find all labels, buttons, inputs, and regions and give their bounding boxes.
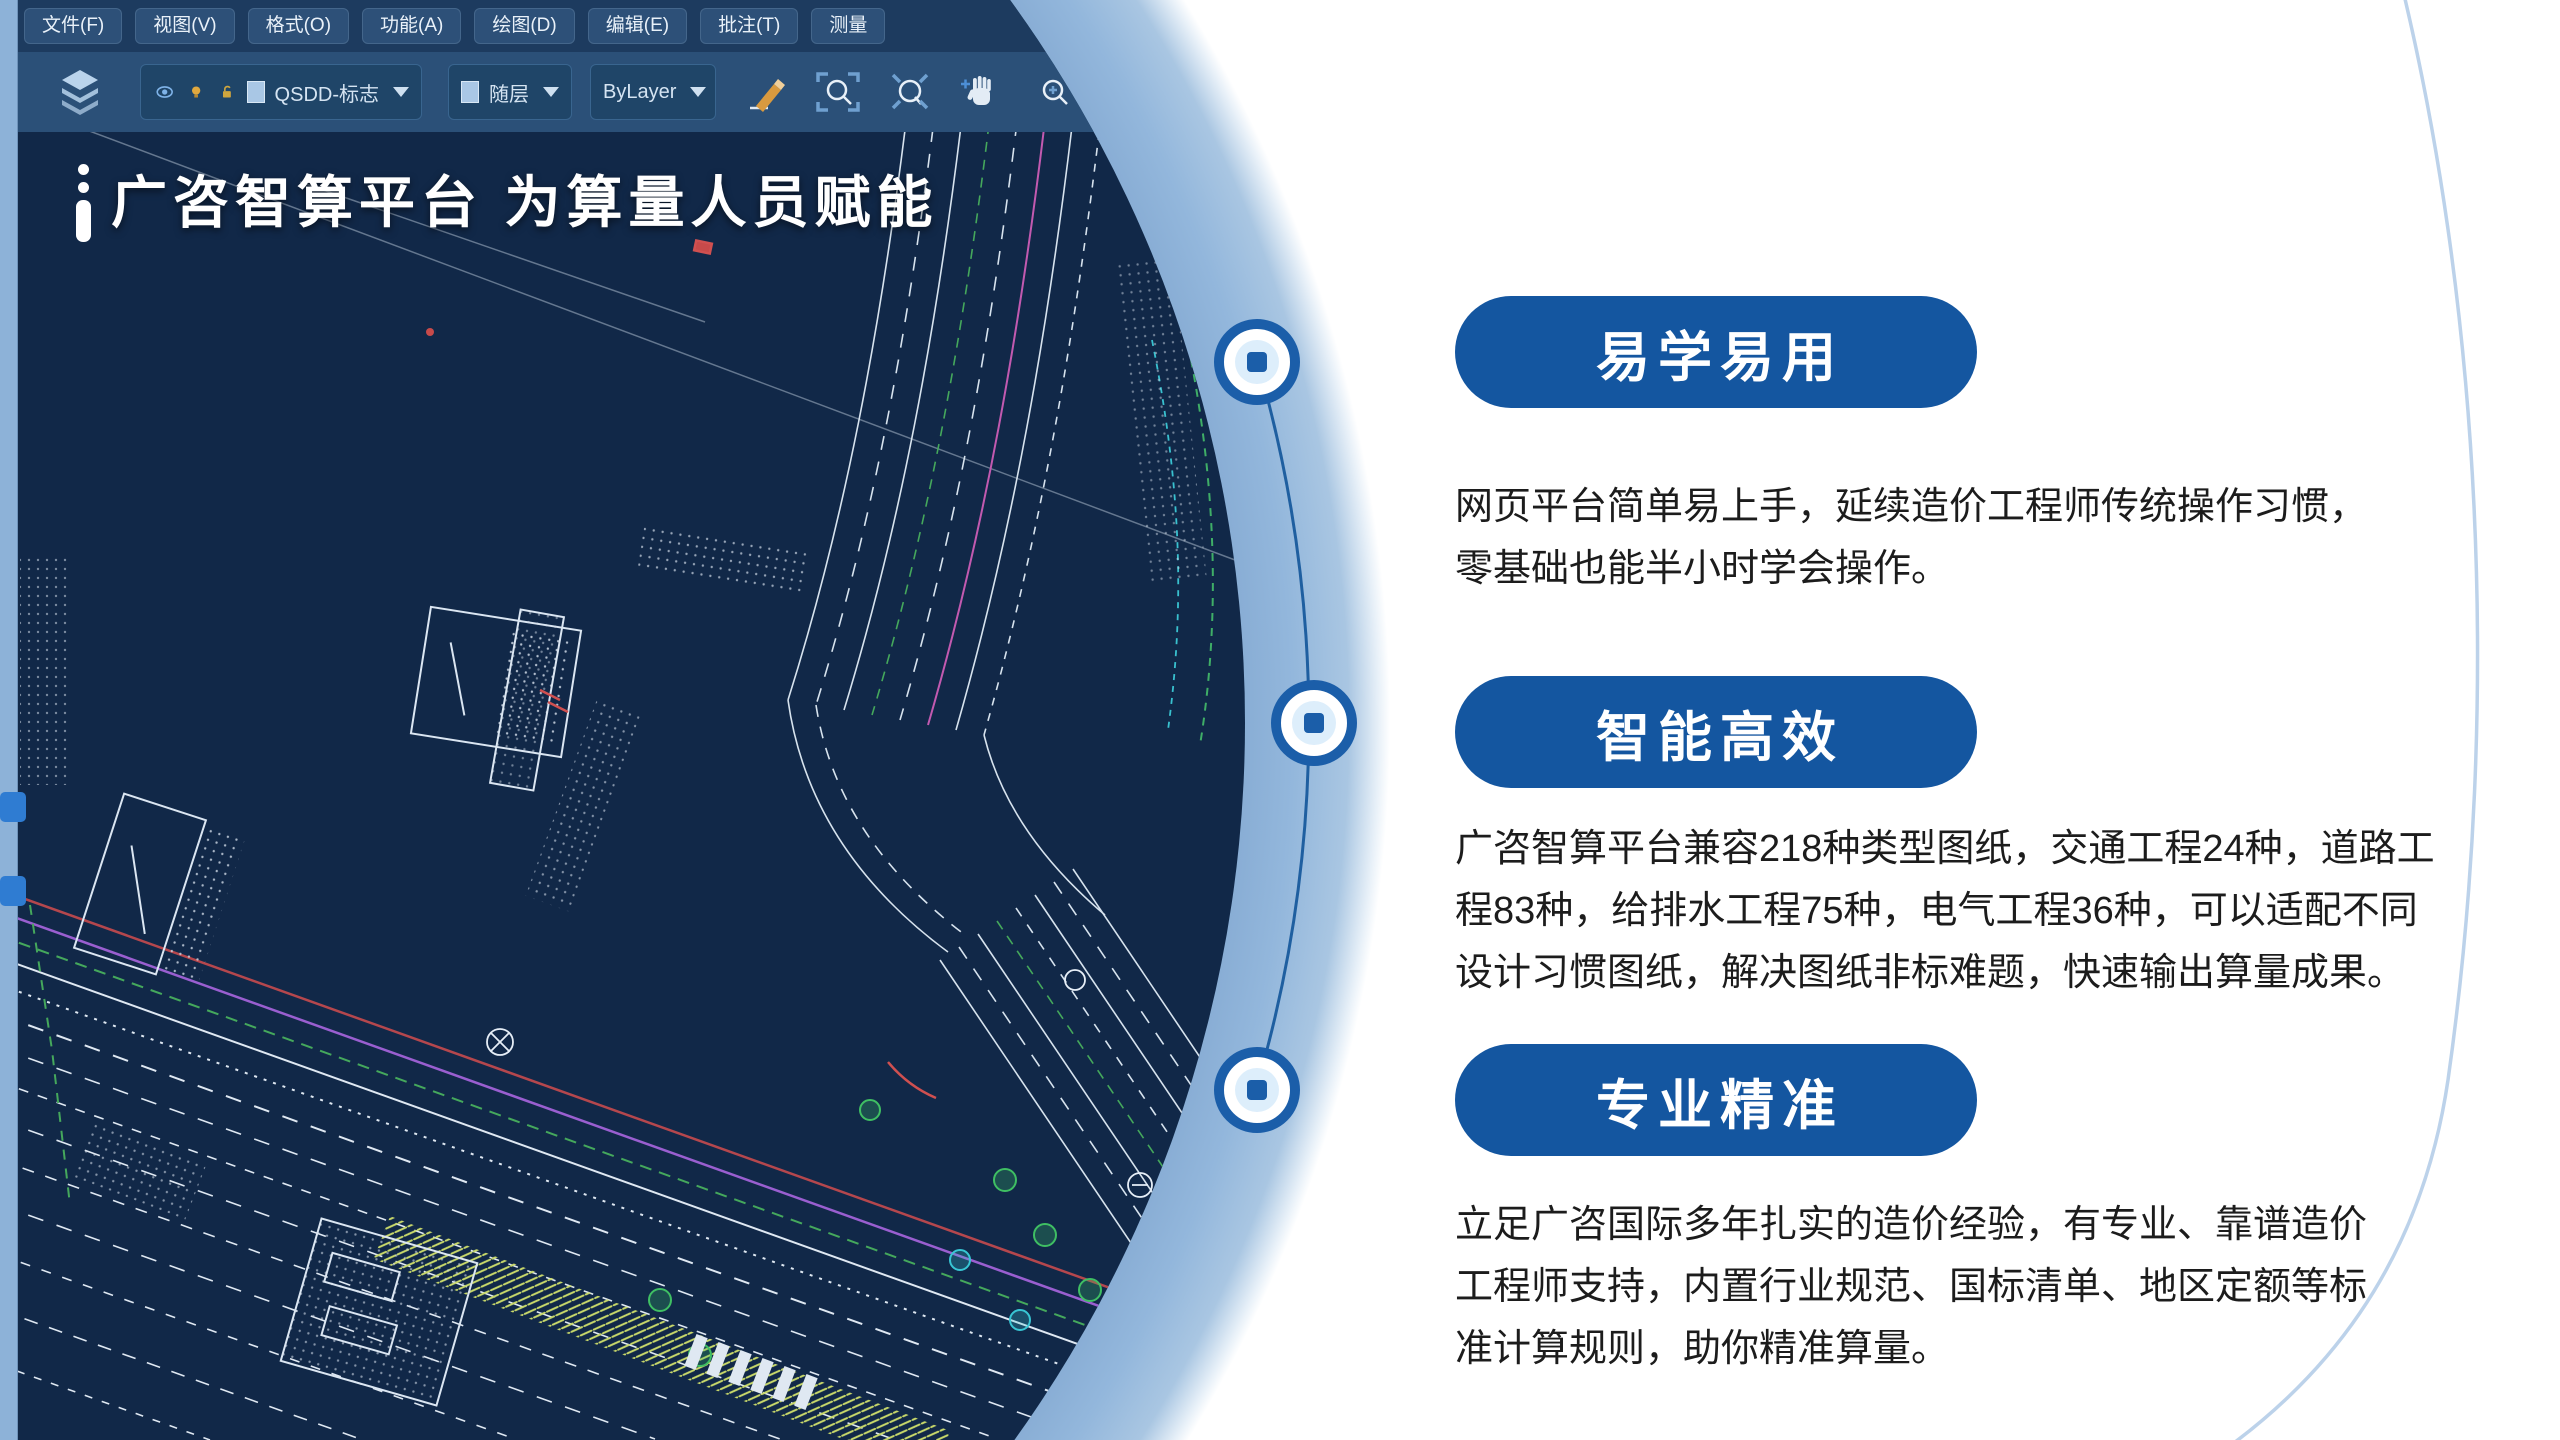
layers-panel-icon[interactable] [52,64,108,120]
chevron-down-icon [543,87,559,97]
page-title: 广咨智算平台 为算量人员赋能 [111,158,939,239]
zoom-extents-icon [888,70,932,114]
title-ornament-icon [76,158,91,242]
cad-menu-bar: 文件(F) 视图(V) 格式(O) 功能(A) 绘图(D) 编辑(E) 批注(T… [0,0,1245,52]
menu-view[interactable]: 视图(V) [135,8,234,44]
menu-measure[interactable]: 测量 [811,8,885,44]
page-title-block: 广咨智算平台 为算量人员赋能 [76,158,939,242]
cad-toolbar: QSDD-标志 随层 ByLayer [0,52,1245,132]
menu-draw[interactable]: 绘图(D) [474,8,574,44]
chevron-down-icon [690,87,706,97]
zoom-window-button[interactable] [816,64,860,120]
side-tool-button[interactable] [0,876,26,906]
color-selector[interactable]: 随层 [448,64,572,120]
menu-file[interactable]: 文件(F) [24,8,122,44]
feature-text-precise: 立足广咨国际多年扎实的造价经验，有专业、靠谱造价 工程师支持，内置行业规范、国标… [1455,1194,2455,1380]
side-strip [0,0,18,1440]
feature-text-smart: 广咨智算平台兼容218种类型图纸，交通工程24种，道路工 程83种，给排水工程7… [1455,818,2455,1004]
layer-selector-value: QSDD-标志 [275,78,379,107]
layers-icon [52,64,108,120]
timeline-bullet-3 [1214,1047,1300,1133]
layer-on-bulb-icon [186,77,206,107]
slide: 文件(F) 视图(V) 格式(O) 功能(A) 绘图(D) 编辑(E) 批注(T… [0,0,2560,1440]
feature-pill-precise: 专业精准 [1455,1044,1977,1156]
menu-function[interactable]: 功能(A) [362,8,461,44]
linetype-selector[interactable]: ByLayer [590,64,716,120]
layer-unlock-icon [217,77,237,107]
zoom-extents-button[interactable] [888,64,932,120]
pan-button[interactable] [958,64,1002,120]
timeline-bullet-2 [1271,680,1357,766]
zoom-in-icon [1032,70,1076,114]
side-tool-button[interactable] [0,792,26,822]
timeline-bullet-1 [1214,319,1300,405]
cad-bottom-right-road [940,869,1245,1440]
zoom-window-icon [816,70,860,114]
current-color-swatch [461,81,479,103]
edit-pencil-button[interactable] [744,64,788,120]
cad-left-green-dash [30,905,70,1205]
menu-annotate[interactable]: 批注(T) [700,8,798,44]
layer-selector[interactable]: QSDD-标志 [140,64,422,120]
pencil-icon [744,70,788,114]
linetype-selector-value: ByLayer [603,81,676,104]
feature-text-easy: 网页平台简单易上手，延续造价工程师传统操作习惯， 零基础也能半小时学会操作。 [1455,476,2455,600]
menu-format[interactable]: 格式(O) [248,8,349,44]
visibility-icon [153,77,176,107]
feature-pill-smart: 智能高效 [1455,676,1977,788]
pan-hand-icon [958,70,1002,114]
menu-edit[interactable]: 编辑(E) [588,8,687,44]
layer-color-swatch [247,81,265,103]
feature-pill-easy: 易学易用 [1455,296,1977,408]
cad-preview-circle: 文件(F) 视图(V) 格式(O) 功能(A) 绘图(D) 编辑(E) 批注(T… [0,0,1245,1440]
color-selector-value: 随层 [489,78,529,107]
chevron-down-icon [393,87,409,97]
cad-speckle-fields [20,258,1207,1220]
zoom-in-button[interactable] [1032,64,1076,120]
